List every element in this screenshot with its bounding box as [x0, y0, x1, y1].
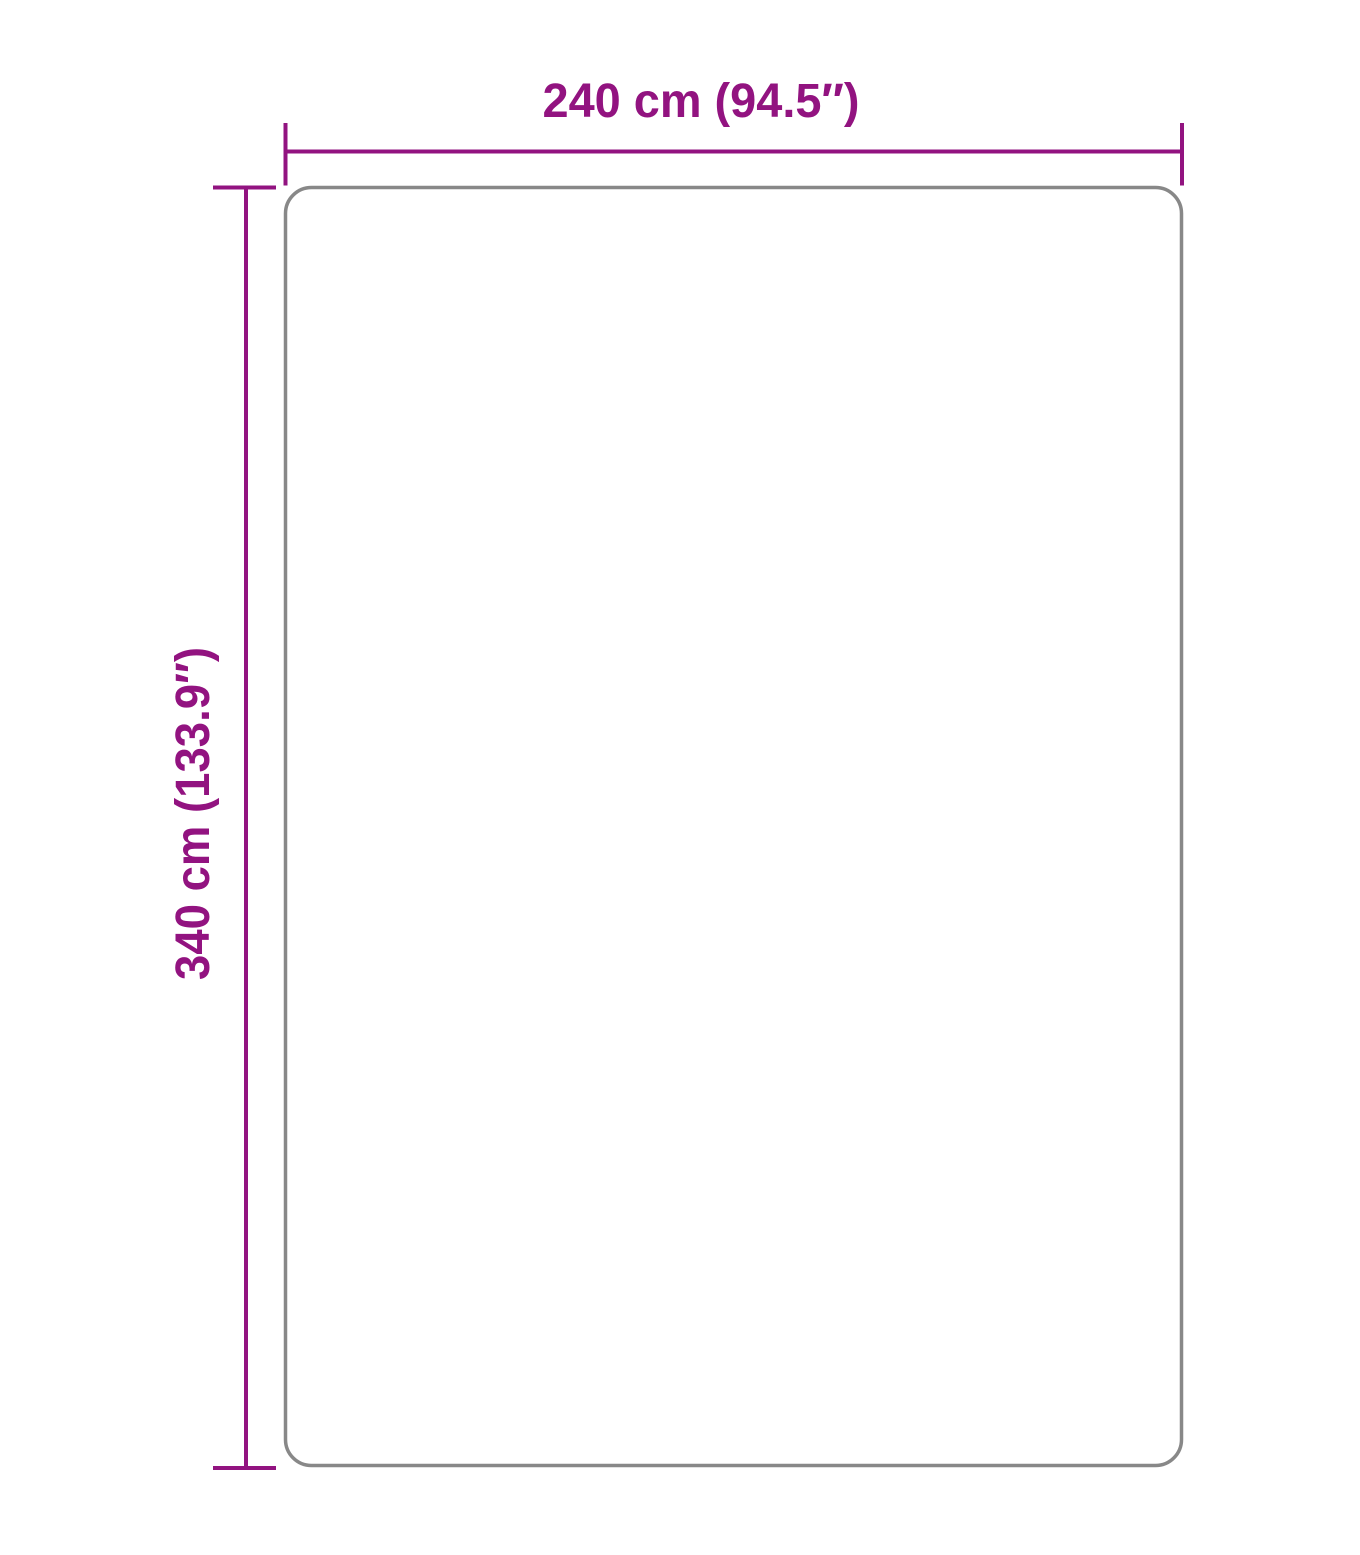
svg-text:240 cm (94.5″): 240 cm (94.5″) [543, 75, 860, 128]
svg-text:340 cm (133.9″): 340 cm (133.9″) [167, 647, 220, 980]
